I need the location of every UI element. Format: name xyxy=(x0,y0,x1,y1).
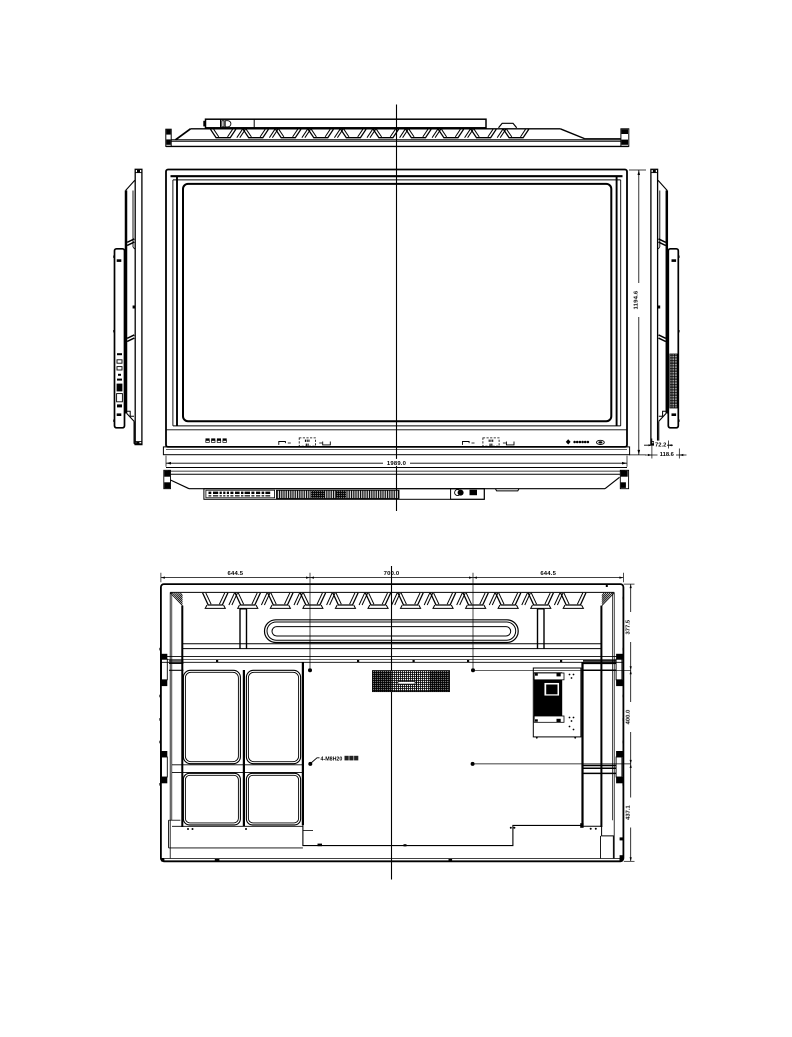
svg-text:700.0: 700.0 xyxy=(384,571,400,577)
svg-text:644.5: 644.5 xyxy=(540,571,556,577)
svg-text:644.5: 644.5 xyxy=(228,571,244,577)
svg-text:▮▮: ▮▮ xyxy=(306,443,310,447)
svg-text:1194.6: 1194.6 xyxy=(634,290,640,309)
svg-text:▮▮: ▮▮ xyxy=(489,443,493,447)
svg-text:4-M8H20: 4-M8H20 xyxy=(321,757,343,763)
svg-text:400.0: 400.0 xyxy=(626,710,632,725)
svg-text:377.5: 377.5 xyxy=(626,619,632,634)
svg-text:437.1: 437.1 xyxy=(626,805,632,820)
svg-text:118.6: 118.6 xyxy=(660,452,675,458)
svg-text:1989.0: 1989.0 xyxy=(387,461,407,467)
svg-text:72.2: 72.2 xyxy=(655,442,666,448)
